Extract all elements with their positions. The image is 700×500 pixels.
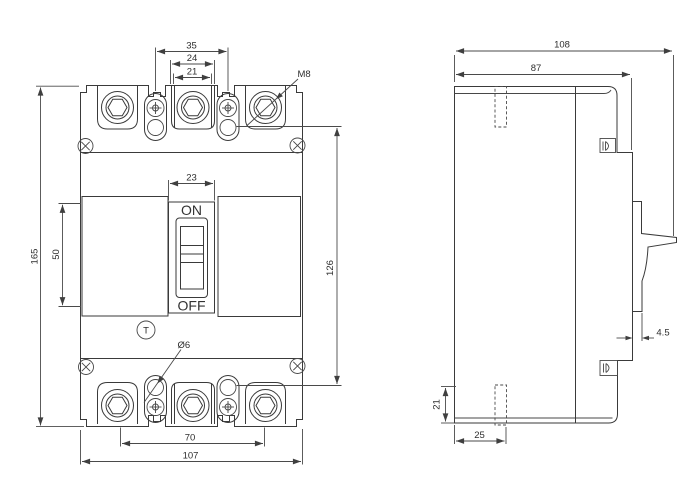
dim-slot-offset: 25 — [474, 430, 485, 441]
toggle-switch — [176, 218, 208, 298]
side-body-outline — [455, 87, 633, 424]
aux-screw-glyph — [147, 100, 164, 117]
switch-off-label: OFF — [178, 298, 206, 314]
dim-pole-inner-width: 21 — [187, 67, 198, 78]
bottom-terminal-pads — [98, 376, 286, 425]
dim-recess-width: 23 — [186, 173, 197, 184]
dim-pole-outer-width: 24 — [187, 53, 198, 64]
side-top-face-line — [455, 90, 612, 94]
dim-overall-depth: 108 — [554, 40, 570, 51]
mounting-hole-glyph — [220, 120, 236, 136]
right-cover-plate — [218, 197, 301, 317]
dim-base-height: 21 — [432, 399, 443, 410]
aux-screw-glyph — [220, 399, 237, 416]
dim-terminal-slot-spacing: 35 — [186, 41, 197, 52]
circuit-breaker-dimension-drawing: ON OFF T 35 24 21 M8 23 165 — [0, 0, 700, 500]
dim-mounting-hole-spacing: 126 — [325, 260, 336, 276]
aux-screw-glyph — [147, 399, 164, 416]
mounting-hole-glyph — [148, 120, 164, 136]
terminal-screw-glyph — [177, 390, 209, 422]
dim-overall-height: 165 — [30, 249, 41, 265]
dim-body-depth: 87 — [531, 63, 542, 74]
dim-overall-width: 107 — [183, 451, 199, 462]
hidden-slot-bottom — [495, 385, 507, 425]
side-view-dimensions: 108 87 4.5 21 25 — [432, 40, 674, 445]
mounting-hole-glyph — [220, 380, 236, 396]
callout-mounting-hole-diameter: Ø6 — [178, 340, 191, 351]
dim-handle-thickness: 4.5 — [656, 328, 669, 339]
front-view: ON OFF T — [78, 86, 305, 427]
side-view — [455, 87, 677, 426]
front-body-outline — [81, 86, 303, 427]
top-terminal-pads — [98, 86, 286, 141]
left-cover-plate — [82, 197, 168, 317]
terminal-screw-glyph — [102, 390, 134, 422]
terminal-screw-glyph — [102, 92, 134, 124]
technical-drawing-page: ON OFF T 35 24 21 M8 23 165 — [0, 0, 700, 500]
switch-on-label: ON — [181, 202, 202, 218]
hidden-slot-top — [495, 87, 507, 128]
aux-screw-glyph — [220, 100, 237, 117]
trip-button-label: T — [143, 326, 149, 337]
side-screw-glyph — [603, 142, 609, 151]
side-handle-profile — [633, 202, 677, 312]
side-screw-glyph — [604, 364, 610, 373]
side-screw-boss-top — [600, 139, 616, 153]
callout-terminal-thread: M8 — [298, 69, 311, 80]
terminal-screw-glyph — [250, 390, 282, 422]
dim-terminal-pitch: 70 — [185, 433, 196, 444]
terminal-screw-glyph — [177, 92, 209, 124]
mounting-hole-glyph — [148, 380, 164, 396]
dim-cover-height: 50 — [51, 249, 62, 260]
